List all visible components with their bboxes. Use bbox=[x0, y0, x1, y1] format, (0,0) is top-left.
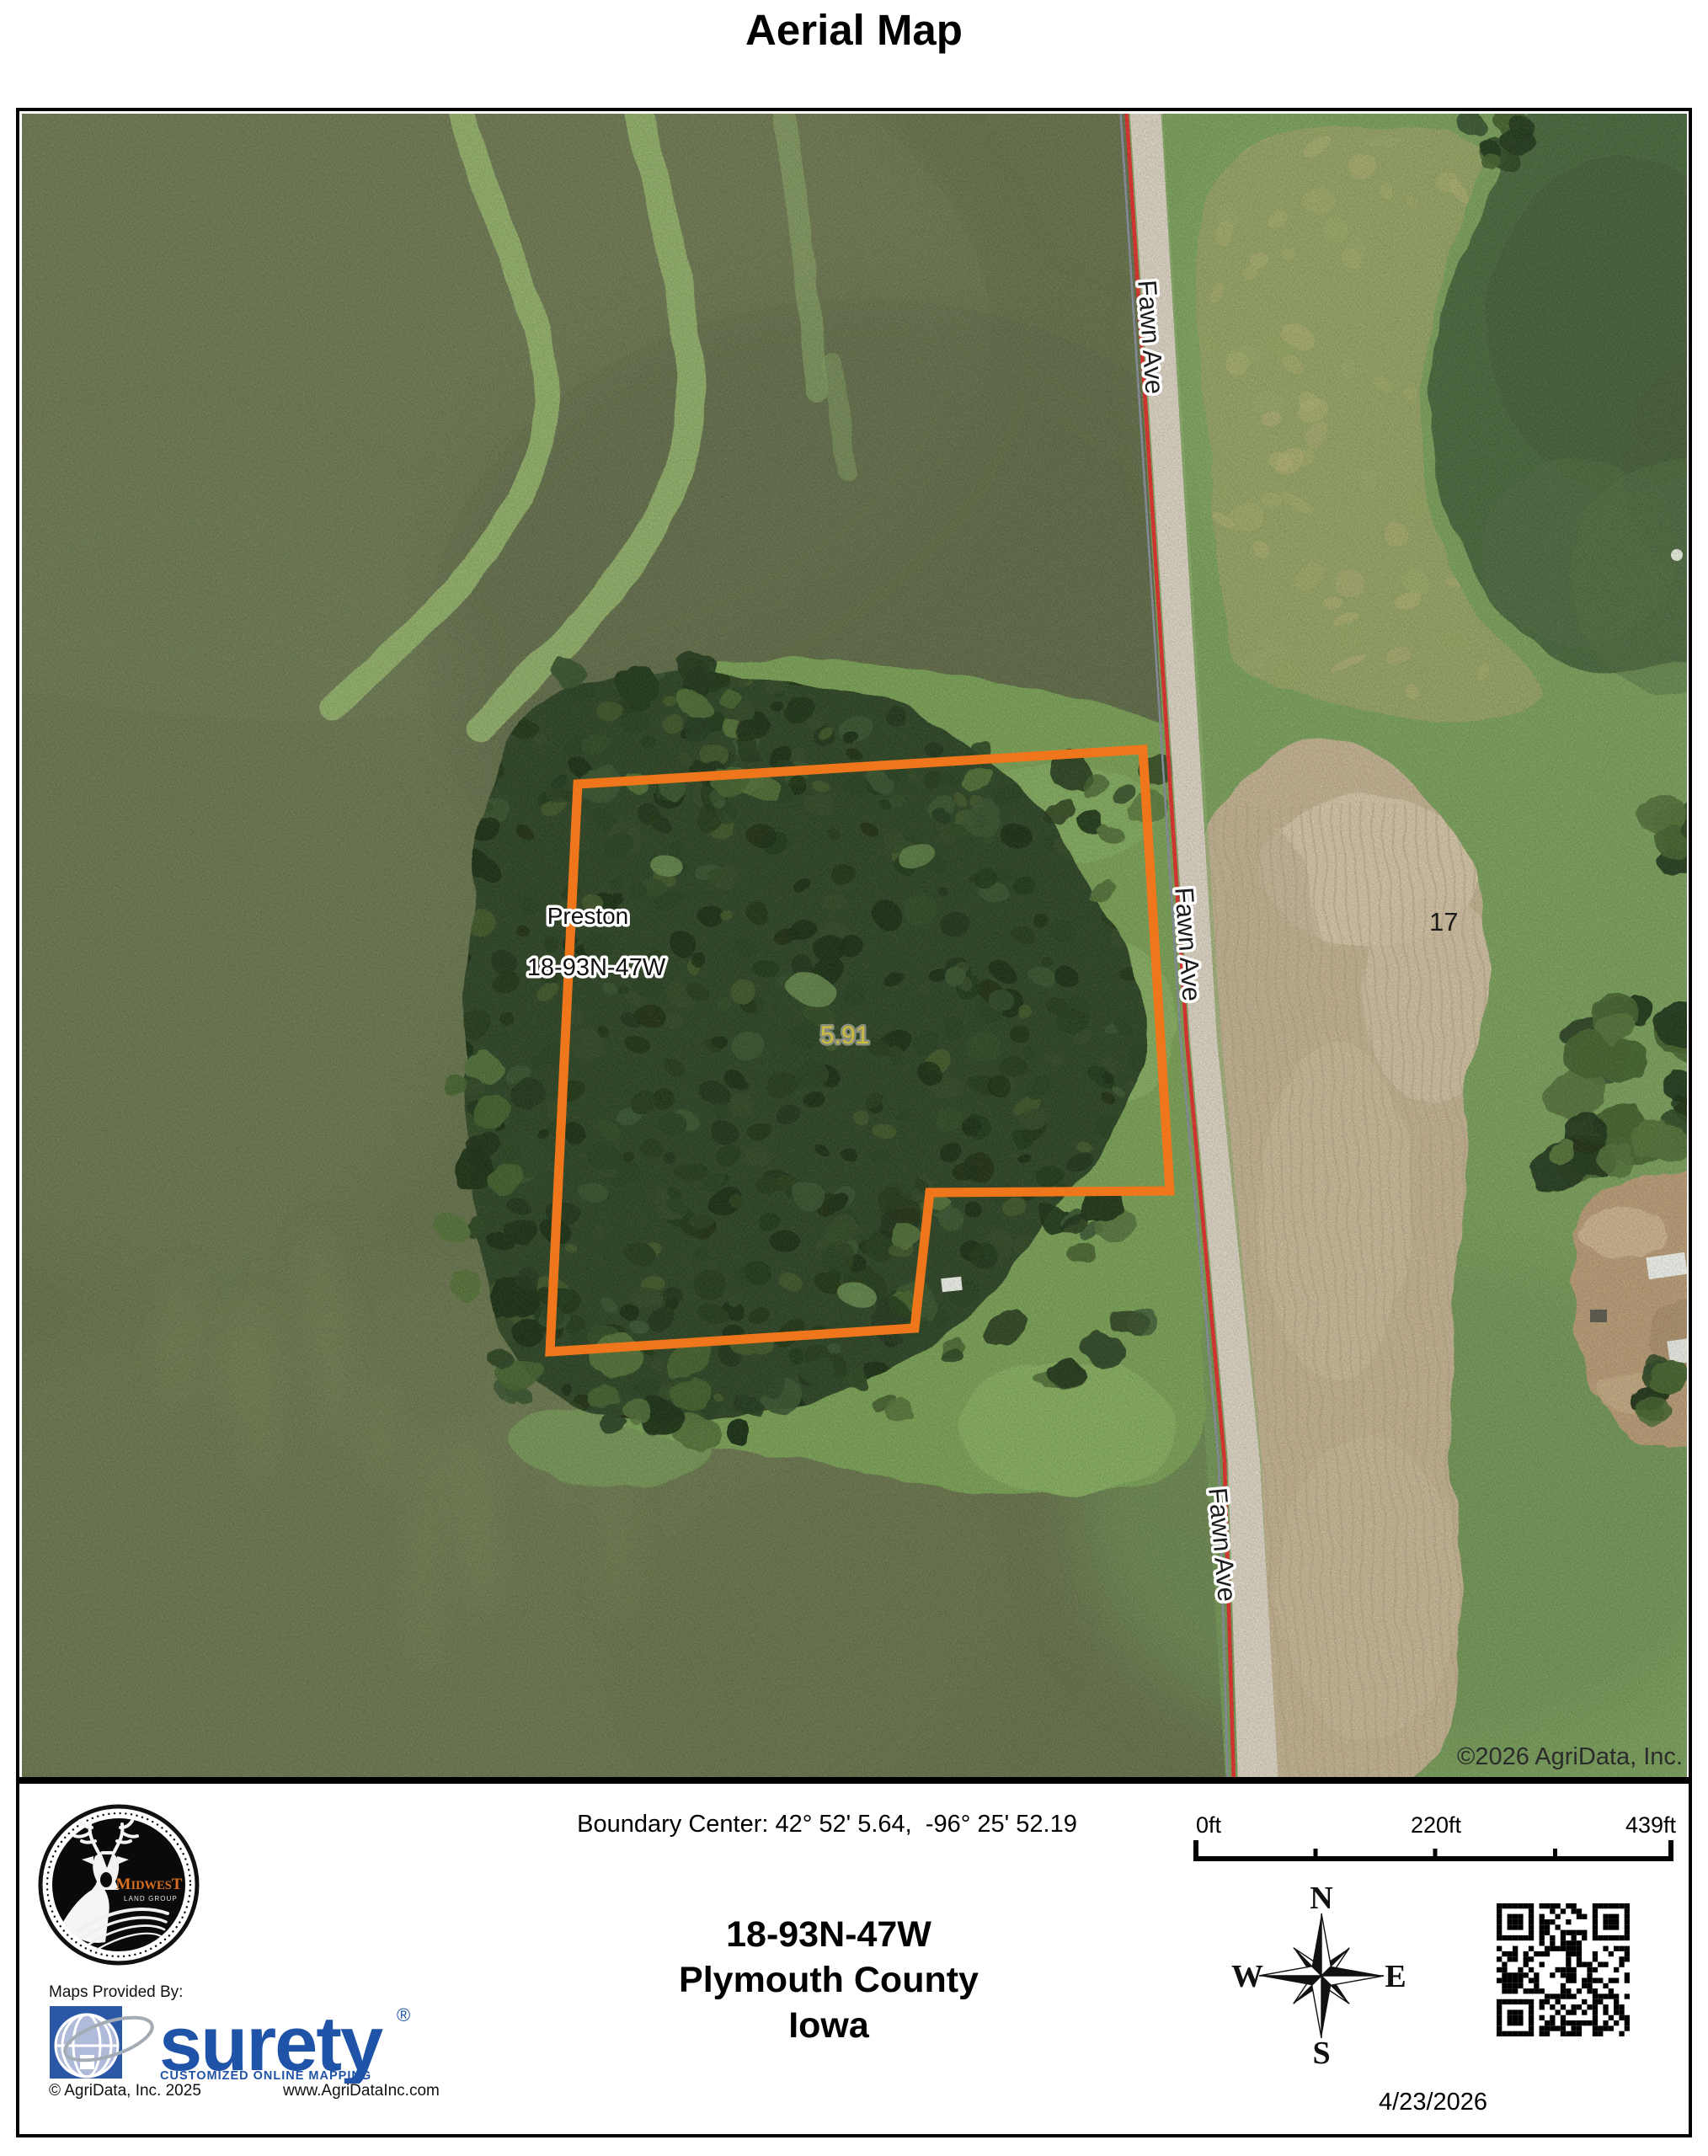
svg-text:17: 17 bbox=[1429, 907, 1458, 937]
svg-text:W: W bbox=[1231, 1959, 1263, 1994]
svg-text:5.91: 5.91 bbox=[820, 1022, 869, 1049]
svg-text:Preston: Preston bbox=[547, 903, 629, 929]
svg-text:MIDWEST: MIDWEST bbox=[116, 1876, 183, 1893]
svg-text:©2026 AgriData, Inc.: ©2026 AgriData, Inc. bbox=[1457, 1743, 1683, 1770]
svg-text:CUSTOMIZED ONLINE MAPPING: CUSTOMIZED ONLINE MAPPING bbox=[160, 2069, 371, 2083]
svg-text:S: S bbox=[1312, 2036, 1330, 2068]
svg-text:LAND GROUP: LAND GROUP bbox=[124, 1895, 178, 1903]
svg-text:®: ® bbox=[397, 2006, 410, 2025]
svg-text:E: E bbox=[1385, 1959, 1406, 1994]
svg-text:N: N bbox=[1310, 1883, 1332, 1916]
svg-text:18-93N-47W: 18-93N-47W bbox=[527, 954, 666, 981]
